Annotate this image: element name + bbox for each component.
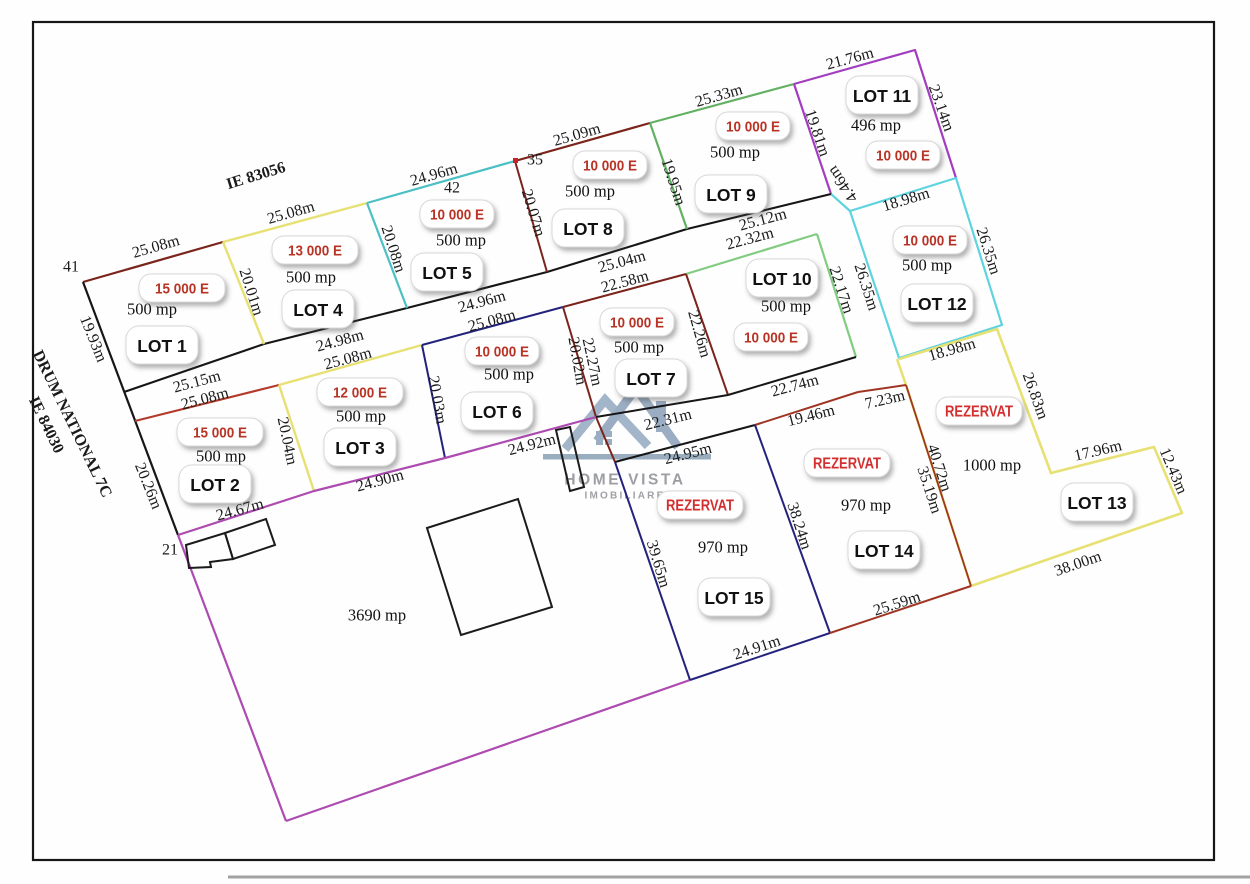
svg-text:LOT 5: LOT 5 <box>422 263 472 283</box>
svg-text:1000 mp: 1000 mp <box>963 456 1021 475</box>
svg-text:13 000 E: 13 000 E <box>288 243 342 260</box>
svg-text:15 000 E: 15 000 E <box>193 425 247 442</box>
svg-text:496 mp: 496 mp <box>851 116 901 135</box>
svg-text:LOT 9: LOT 9 <box>706 185 756 205</box>
svg-text:500 mp: 500 mp <box>902 256 952 275</box>
svg-text:REZERVAT: REZERVAT <box>813 456 881 473</box>
svg-text:LOT 10: LOT 10 <box>752 269 812 289</box>
svg-text:12 000 E: 12 000 E <box>333 385 387 402</box>
svg-text:500 mp: 500 mp <box>286 268 336 287</box>
svg-text:41: 41 <box>63 259 79 276</box>
svg-text:10 000 E: 10 000 E <box>610 315 664 332</box>
svg-text:970 mp: 970 mp <box>698 538 748 557</box>
svg-text:10 000 E: 10 000 E <box>726 119 780 136</box>
svg-text:500 mp: 500 mp <box>614 338 664 357</box>
svg-text:LOT 8: LOT 8 <box>563 219 613 239</box>
svg-text:LOT 12: LOT 12 <box>907 294 967 314</box>
svg-text:10 000 E: 10 000 E <box>475 344 529 361</box>
svg-text:42: 42 <box>444 180 460 197</box>
svg-text:LOT 6: LOT 6 <box>472 402 522 422</box>
svg-text:500 mp: 500 mp <box>336 407 386 426</box>
svg-text:10 000 E: 10 000 E <box>903 233 957 250</box>
svg-text:10 000 E: 10 000 E <box>744 330 798 347</box>
svg-text:21: 21 <box>162 542 178 559</box>
svg-text:35: 35 <box>527 152 543 169</box>
svg-text:LOT 1: LOT 1 <box>137 336 187 356</box>
svg-text:LOT 11: LOT 11 <box>853 86 912 106</box>
svg-text:15 000 E: 15 000 E <box>155 281 209 298</box>
svg-text:10 000 E: 10 000 E <box>876 148 930 165</box>
svg-text:500 mp: 500 mp <box>196 447 246 466</box>
svg-text:10 000 E: 10 000 E <box>583 158 637 175</box>
svg-text:3690 mp: 3690 mp <box>348 606 406 625</box>
svg-text:970 mp: 970 mp <box>841 496 891 515</box>
svg-text:10 000 E: 10 000 E <box>430 207 484 224</box>
svg-text:LOT 4: LOT 4 <box>293 300 343 320</box>
svg-text:REZERVAT: REZERVAT <box>666 498 734 515</box>
svg-text:500 mp: 500 mp <box>484 365 534 384</box>
svg-text:REZERVAT: REZERVAT <box>945 404 1013 421</box>
svg-text:LOT 13: LOT 13 <box>1067 493 1127 513</box>
svg-text:LOT 3: LOT 3 <box>335 438 385 458</box>
svg-text:LOT 14: LOT 14 <box>854 541 914 561</box>
svg-text:500 mp: 500 mp <box>436 231 486 250</box>
svg-text:500 mp: 500 mp <box>565 182 615 201</box>
svg-text:500 mp: 500 mp <box>710 143 760 162</box>
svg-text:LOT 15: LOT 15 <box>704 588 764 608</box>
svg-text:LOT 7: LOT 7 <box>626 369 676 389</box>
svg-text:500 mp: 500 mp <box>761 297 811 316</box>
svg-text:LOT 2: LOT 2 <box>190 475 240 495</box>
